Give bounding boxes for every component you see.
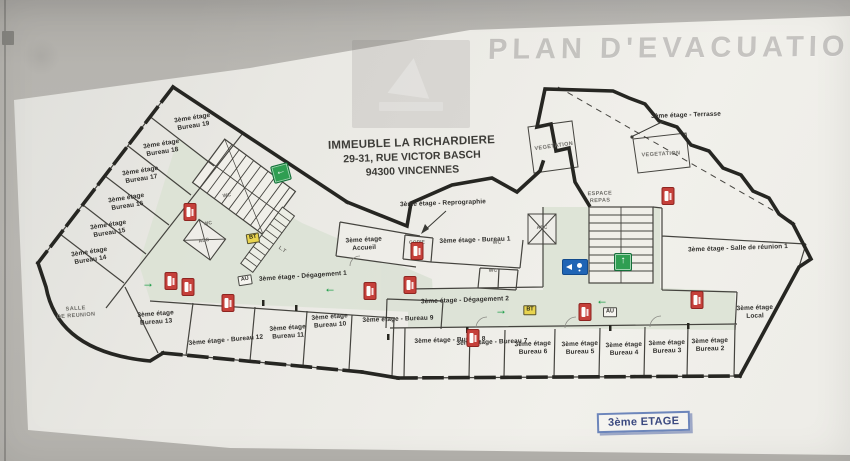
label-wc-3-line: WC: [493, 240, 502, 247]
label-espace-repas: ESPACEREPAS: [587, 190, 612, 205]
extinguisher-icon: [662, 187, 675, 205]
label-wc-4-line: WC: [489, 268, 498, 275]
bt-badge-icon: BT: [523, 305, 536, 315]
label-bureau-4-line: Bureau 4: [606, 349, 643, 359]
label-bureau-11: 3ème étageBureau 11: [269, 323, 307, 342]
label-bureau-6: 3ème étageBureau 6: [515, 340, 552, 358]
label-bureau-3: 3ème étageBureau 3: [649, 339, 686, 357]
label-local: 3ème étageLocal: [737, 304, 774, 322]
label-asc-2-line: ASC: [536, 225, 547, 232]
au-badge-icon: AU: [603, 307, 617, 317]
label-wc-2: WC: [203, 220, 212, 228]
label-bureau-10: 3ème étageBureau 10: [311, 312, 349, 331]
label-bureau-6-line: Bureau 6: [515, 348, 552, 358]
label-asc-2: ASC: [536, 225, 547, 232]
green-arrow-icon: →: [142, 277, 154, 289]
label-accueil: 3ème étageAccueil: [345, 236, 382, 255]
exit-sign-icon: ↑: [614, 253, 632, 271]
label-bureau-13: 3ème étageBureau 13: [137, 309, 175, 328]
label-bureau-5-line: Bureau 5: [562, 348, 599, 358]
extinguisher-icon: [182, 278, 195, 296]
extinguisher-icon: [411, 242, 424, 260]
green-arrow-icon: ←: [596, 294, 608, 306]
plan-drawing-stack: IMMEUBLE LA RICHARDIERE 29-31, RUE VICTO…: [0, 0, 850, 461]
label-bureau-3-line: Bureau 3: [649, 347, 686, 357]
staircase-right: [589, 207, 653, 283]
extinguisher-icon: [165, 272, 178, 290]
extinguisher-icon: [364, 282, 377, 300]
access-sign-icon: [562, 259, 588, 275]
label-bureau-5: 3ème étageBureau 5: [562, 340, 599, 358]
label-local-line: Local: [737, 312, 774, 322]
extinguisher-icon: [404, 276, 417, 294]
evacuation-plan-photo: PLAN D'EVACUATION: [0, 0, 850, 461]
label-bureau-2: 3ème étageBureau 2: [692, 337, 729, 355]
label-wc-2-line: WC: [203, 220, 212, 228]
label-wc-1: WC: [222, 192, 231, 200]
extinguisher-icon: [184, 203, 197, 221]
green-arrow-icon: ←: [324, 282, 336, 294]
label-wc-4: WC: [489, 268, 498, 275]
plan-title-block: IMMEUBLE LA RICHARDIERE 29-31, RUE VICTO…: [297, 132, 526, 182]
label-espace-repas-line: REPAS: [588, 198, 613, 206]
green-arrow-icon: →: [495, 304, 507, 316]
floor-badge: 3ème ETAGE: [597, 411, 691, 433]
extinguisher-icon: [222, 294, 235, 312]
label-wc-3: WC: [493, 240, 502, 247]
label-bureau-4: 3ème étageBureau 4: [606, 341, 643, 359]
label-bureau-2-line: Bureau 2: [692, 345, 729, 355]
label-salle-de-reunion: SALLEDE REUNION: [56, 305, 95, 322]
label-wc-1-line: WC: [222, 192, 231, 200]
extinguisher-icon: [691, 291, 704, 309]
extinguisher-icon: [579, 303, 592, 321]
extinguisher-icon: [467, 329, 480, 347]
